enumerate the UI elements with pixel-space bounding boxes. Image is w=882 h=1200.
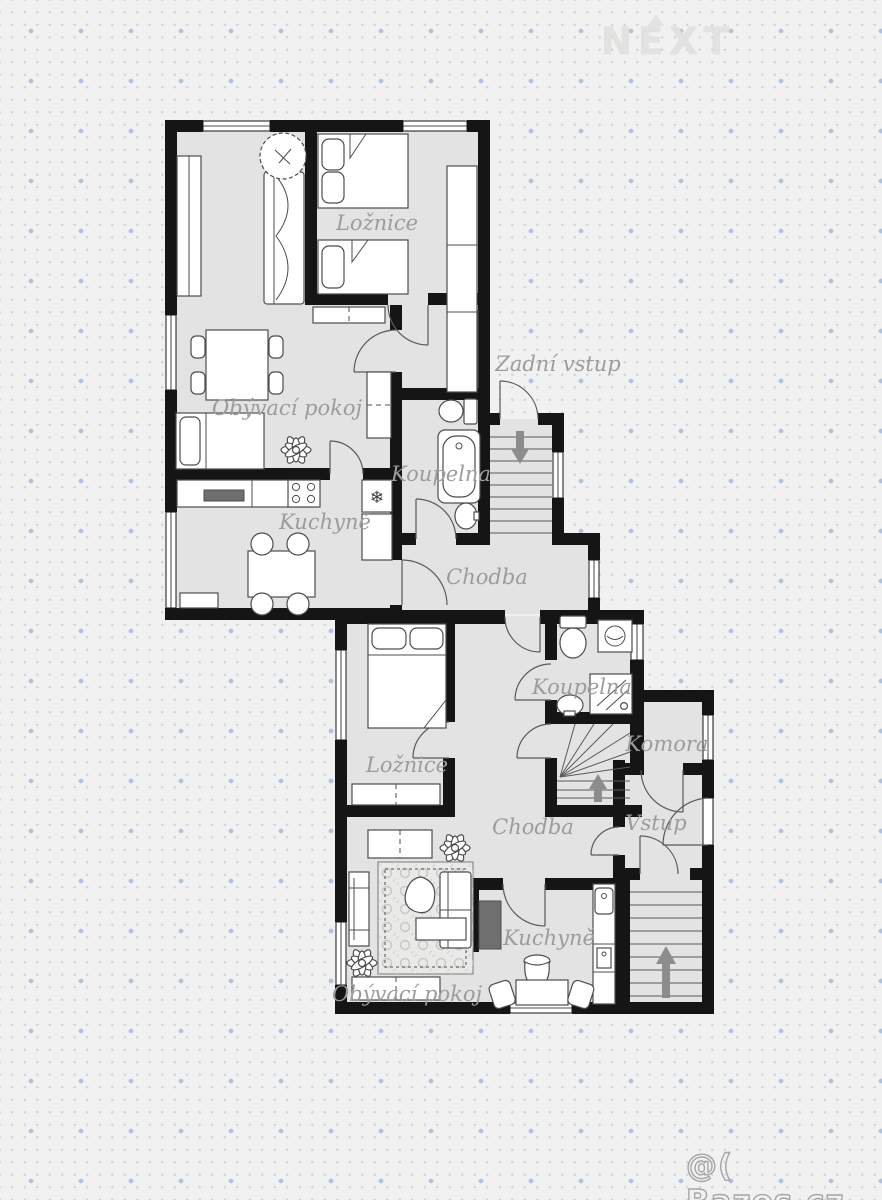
toilet-icon — [560, 616, 586, 658]
bench — [349, 872, 369, 946]
window-icon — [631, 624, 643, 660]
room-label-upper-bathroom: Koupelna — [390, 462, 491, 486]
room-label-pantry: Komora — [625, 732, 709, 756]
sofa-icon — [264, 172, 304, 304]
bench — [352, 784, 440, 805]
window-icon — [203, 121, 270, 131]
stove-icon — [288, 480, 320, 507]
washing-machine-icon — [598, 620, 632, 652]
wardrobe — [447, 166, 477, 392]
room-label-lower-hall: Chodba — [492, 815, 574, 839]
door-back-entrance — [500, 381, 538, 419]
oven-icon — [597, 948, 611, 968]
room-label-upper-living: Obývací pokoj — [212, 396, 363, 420]
room-label-back-entrance: Zadní vstup — [494, 352, 621, 376]
room-label-lower-bathroom: Koupelna — [531, 675, 632, 699]
floor-plan-drawing: ❄ — [0, 0, 882, 1200]
next-logo-watermark: NEXT — [601, 20, 735, 63]
daybed-icon — [176, 413, 264, 469]
wardrobe — [177, 156, 201, 296]
cabinet — [180, 593, 218, 608]
svg-text:❄: ❄ — [370, 488, 384, 508]
room-label-entrance: Vstup — [625, 811, 686, 835]
double-bed-icon — [368, 624, 446, 728]
room-label-upper-hall: Chodba — [446, 565, 528, 589]
next-logo-text: NEXT — [601, 20, 735, 63]
next-logo-arrow-icon — [648, 7, 664, 26]
window-icon — [336, 650, 346, 740]
window-icon — [166, 512, 176, 608]
cabinet — [368, 830, 432, 858]
sideboard — [313, 307, 385, 323]
window-icon — [553, 452, 563, 498]
room-label-upper-kitchen: Kuchyně — [278, 510, 371, 534]
window-icon — [336, 922, 346, 985]
coffee-table-icon — [416, 918, 466, 940]
window-icon — [403, 121, 467, 131]
plant-bush-icon — [260, 133, 306, 179]
floor-plan-canvas: ❄ — [0, 0, 882, 1200]
double-bed-icon — [318, 134, 408, 208]
room-label-lower-living: Obývací pokoj — [332, 982, 483, 1006]
room-label-lower-bedroom: Ložnice — [365, 753, 448, 777]
single-bed-icon — [318, 240, 408, 294]
room-label-lower-kitchen: Kuchyně — [502, 926, 595, 950]
sink-icon — [595, 888, 613, 914]
bazos-watermark: @( Bazos.cz — [686, 1148, 882, 1200]
window-icon — [589, 560, 599, 598]
entry-threshold — [703, 798, 713, 845]
toilet-icon — [439, 399, 477, 424]
tv-icon — [479, 901, 501, 949]
wardrobe — [367, 372, 391, 438]
window-icon — [166, 315, 176, 390]
room-label-upper-bedroom: Ložnice — [335, 211, 418, 235]
